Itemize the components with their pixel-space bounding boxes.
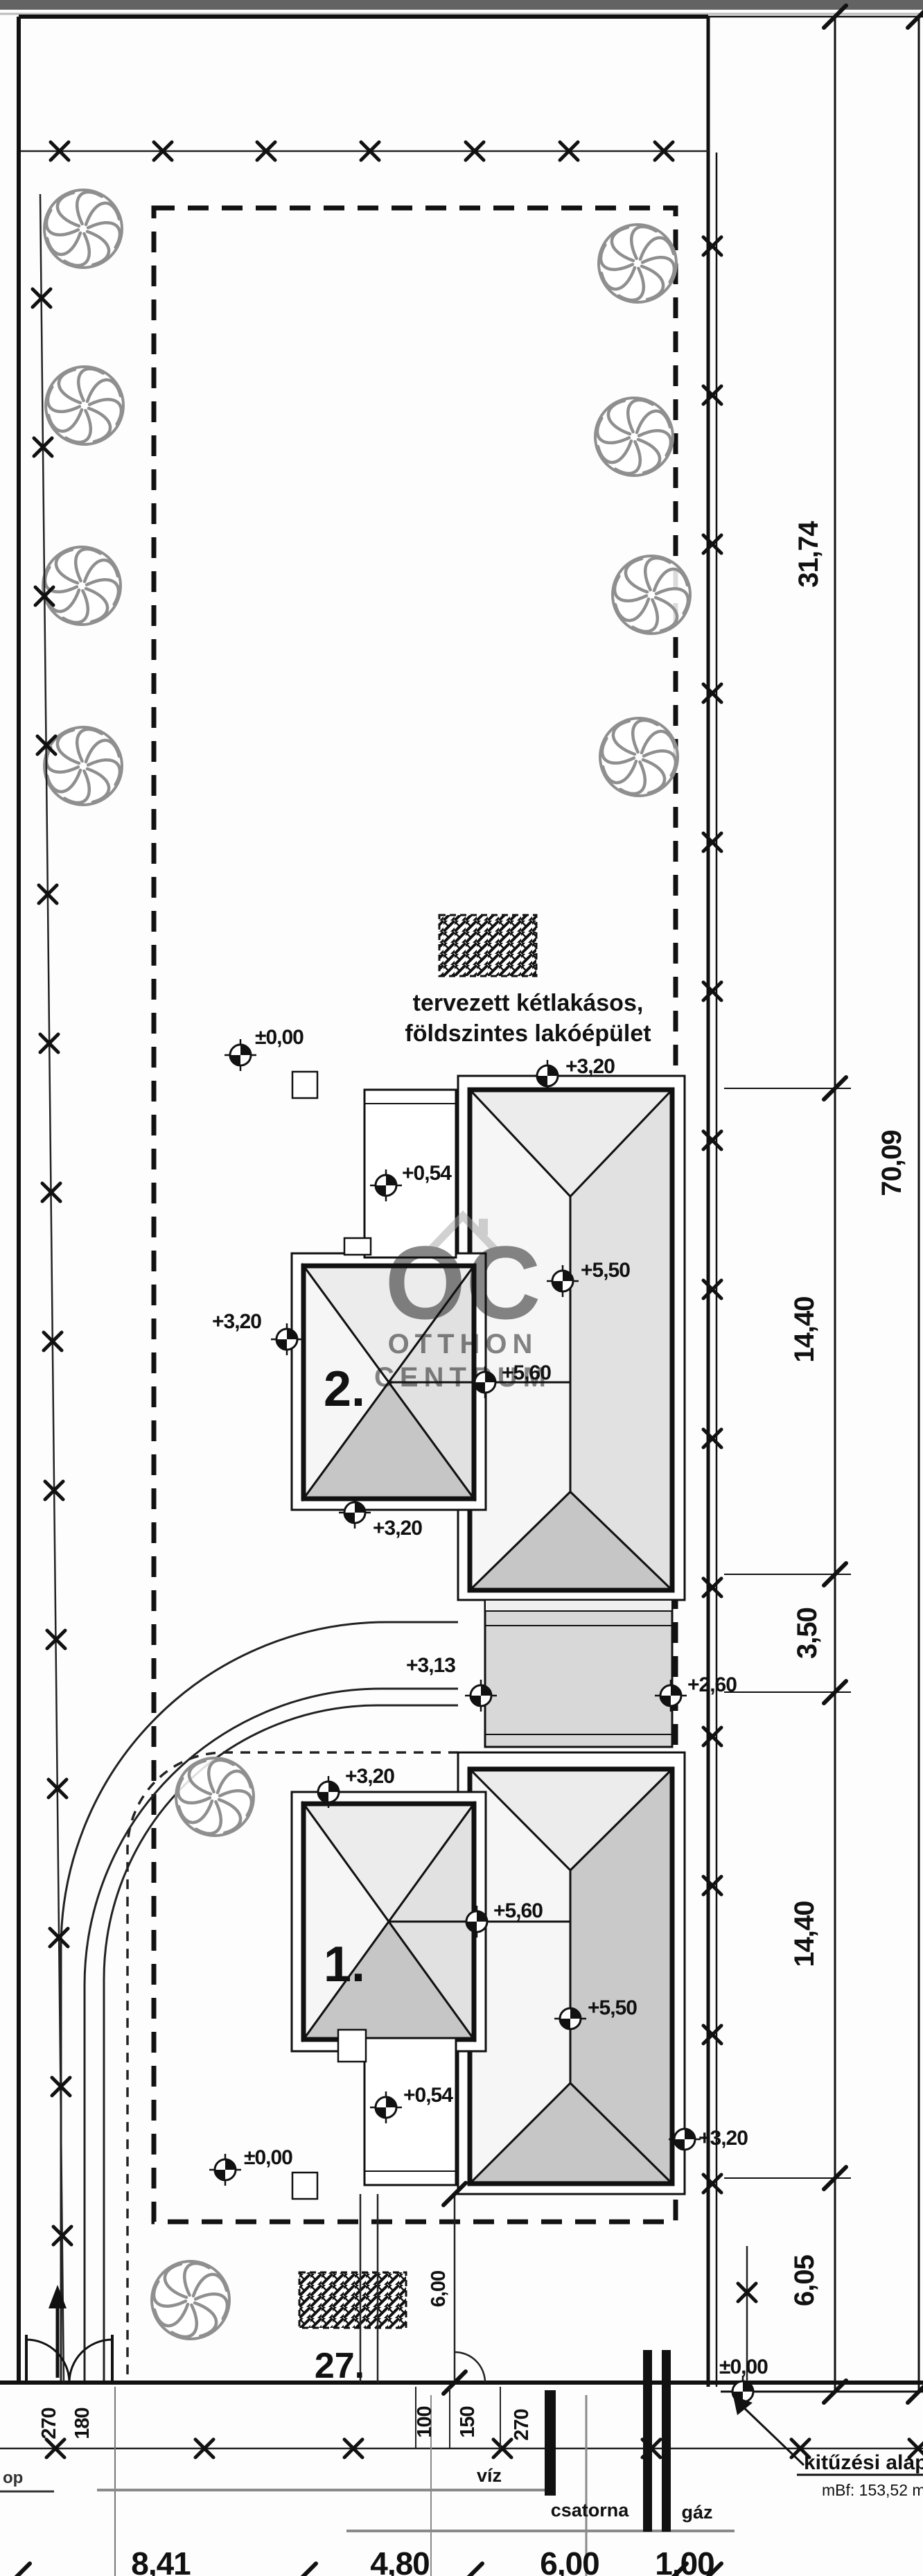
gas-label: gáz [681,2502,712,2523]
dimension-labels-right: 31,74 14,40 3,50 14,40 6,05 70,09 [789,521,907,2306]
annotation-line2: földszintes lakóépület [405,1020,651,1047]
elev-10: +5,60 [493,1899,543,1922]
tree-icon [41,362,128,449]
road-band-top [0,0,923,14]
house2-number: 2. [324,1361,365,1417]
fence-top [21,142,708,160]
tree-icon [171,1753,258,1840]
elev-3: +3,20 [212,1310,261,1333]
dimension-chain-right [721,6,923,2403]
edge-text-fragment: op [3,2469,23,2487]
tree-icon [608,551,695,638]
elev-15: ±0,00 [719,2356,768,2378]
fence-left [33,194,71,2383]
elev-6: +3,20 [373,1517,422,1540]
tree-icon [595,713,683,801]
tree-icon [147,2256,234,2344]
house1-step [338,2030,366,2062]
dim-270-left: 270 [38,2408,60,2439]
elev-5: +5,60 [502,1361,551,1384]
gas-bar-2 [662,2350,671,2532]
house1-step-sw [292,2173,317,2199]
site-plan-page: OC OTTHON CENTRUM víz csatorna gáz [0,0,923,2576]
dim-1-00: 1,00 [655,2545,714,2576]
sewer-label: csatorna [551,2500,630,2521]
dim-150-mid: 150 [457,2406,479,2437]
dim-14-40-a: 14,40 [789,1296,820,1362]
elev-9: +3,20 [345,1765,394,1788]
dim-270-mid: 270 [511,2409,533,2440]
hatched-structure-lower [299,2272,406,2328]
hatched-structure-upper [439,915,536,976]
level-marker-icon [225,1039,256,1071]
water-label: víz [477,2465,502,2486]
elev-8: +2,60 [687,1673,737,1696]
elev-14: +3,20 [698,2127,748,2150]
site-plan-canvas: OC OTTHON CENTRUM víz csatorna gáz [0,0,923,2576]
dim-3-50: 3,50 [792,1608,823,1659]
dim-6-05: 6,05 [789,2254,820,2306]
dim-100-mid: 100 [414,2406,436,2437]
tree-icon [39,722,127,810]
dim-4-80: 4,80 [370,2545,430,2576]
watermark-line1: OTTHON [388,1329,538,1359]
elev-0: ±0,00 [255,1026,304,1049]
fence-street-front [0,2439,923,2457]
tree-icon [590,393,678,480]
elev-1: +3,20 [565,1055,615,1078]
elev-13: ±0,00 [244,2146,292,2169]
dim-31-74: 31,74 [793,521,824,588]
elev-4: +5,50 [581,1259,630,1282]
fence-right [703,237,756,2387]
level-marker-icon [209,2154,241,2186]
elev-7: +3,13 [406,1654,455,1677]
house1-number: 1. [324,1937,365,1992]
elev-11: +5,50 [588,1996,637,2019]
house2-wing-step [344,1238,371,1255]
elev-2: +0,54 [402,1162,452,1185]
house2-step [292,1072,317,1098]
tree-icon [38,542,125,629]
tree-icon [39,185,127,272]
dim-6-00-setback: 6,00 [428,2271,450,2307]
dim-8-41: 8,41 [131,2545,191,2576]
watermark-initials: OC [385,1224,541,1341]
dim-6-00-b: 6,00 [540,2545,599,2576]
gas-bar-1 [643,2350,652,2532]
main-gate [26,2335,115,2576]
dim-70-09: 70,09 [877,1130,907,1196]
survey-note-line2: mBf: 153,52 m [822,2481,923,2499]
dim-14-40-b: 14,40 [789,1901,820,1967]
water-service-bar [545,2390,556,2496]
tree-icon [594,220,681,307]
survey-note-line1: kitűzési alap [804,2451,923,2474]
plot-number: 27. [315,2346,364,2386]
dim-180-left: 180 [71,2408,94,2439]
annotation-line1: tervezett kétlakásos, [413,990,644,1016]
elev-12: +0,54 [403,2084,453,2107]
connector-wing [485,1600,672,1747]
